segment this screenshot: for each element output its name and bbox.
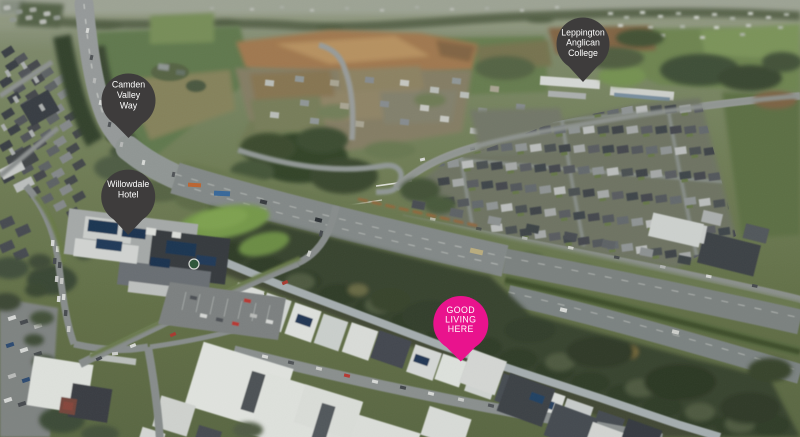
- svg-text:Leppington: Leppington: [561, 27, 605, 37]
- svg-text:Anglican: Anglican: [566, 38, 600, 48]
- svg-text:Willowdale: Willowdale: [107, 179, 149, 189]
- svg-text:Hotel: Hotel: [118, 190, 139, 200]
- svg-text:College: College: [568, 48, 598, 58]
- svg-text:Way: Way: [120, 100, 138, 110]
- svg-text:HERE: HERE: [448, 324, 474, 334]
- svg-text:Valley: Valley: [117, 90, 141, 100]
- svg-text:Camden: Camden: [112, 80, 145, 90]
